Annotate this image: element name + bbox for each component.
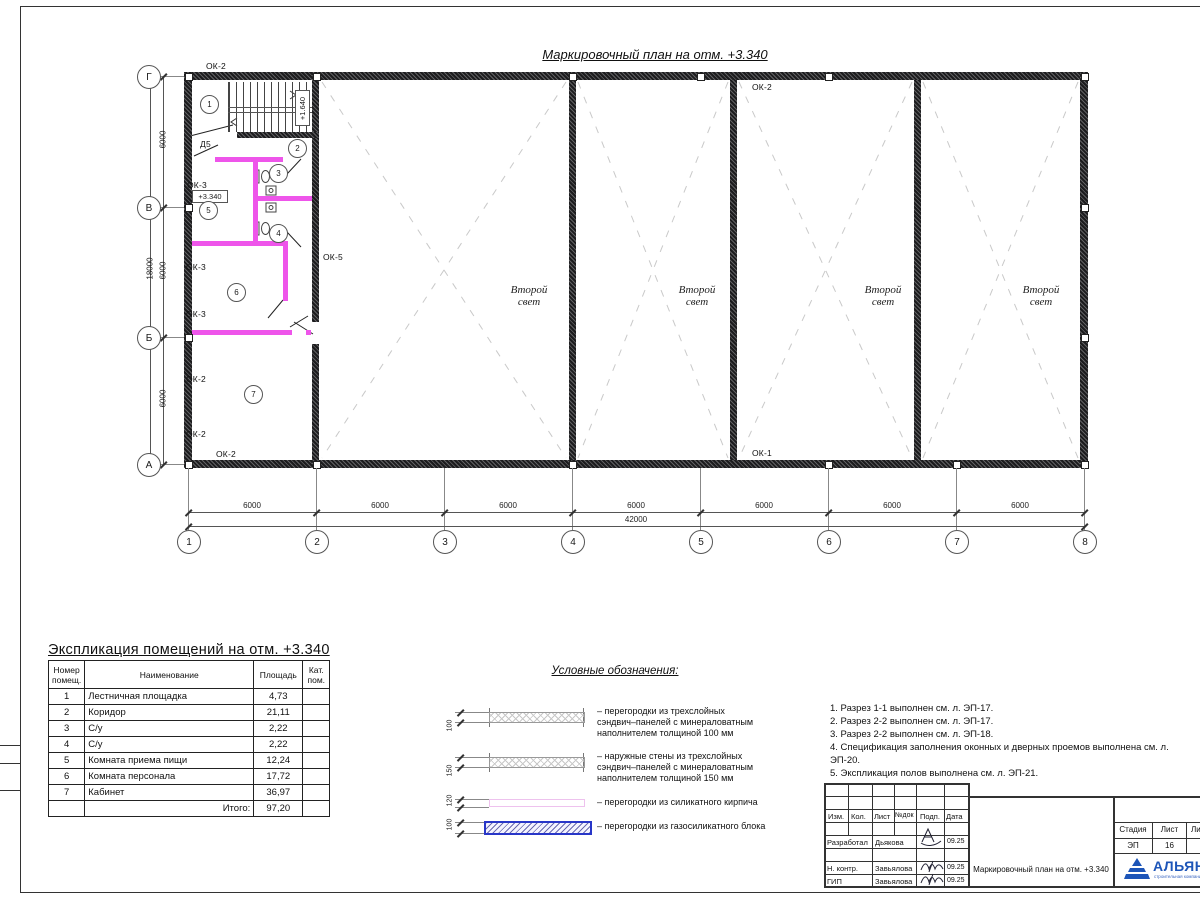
grid-axis-label: 3 (442, 537, 448, 548)
cell-area: 21,11 (254, 705, 303, 721)
legend-thickness: 150 (447, 756, 454, 786)
table-row: 7Кабинет36,97 (49, 785, 330, 801)
cell-name: Лестничная площадка (85, 689, 254, 705)
second-light-line1: Второй (666, 284, 728, 296)
stamp-line (824, 809, 968, 810)
legend-line: – наружные стены из трехслойных (597, 751, 753, 762)
header-room-number: Номерпомещ. (49, 661, 85, 689)
room-number: 6 (227, 283, 246, 302)
second-light-label: Второйсвет (852, 284, 914, 308)
stamp-sheet-value: 16 (1153, 841, 1186, 850)
table-row: 5Комната приема пищи12,24 (49, 753, 330, 769)
drawing-sheet: Маркировочный план на отм. +3.340 (0, 0, 1200, 900)
cell-area: 2,22 (254, 721, 303, 737)
wall-hall-partition-1 (569, 80, 576, 460)
cell-name: Кабинет (85, 785, 254, 801)
grid-axis-v: В (137, 196, 161, 220)
column-marker (825, 73, 833, 81)
stamp-sheet-header: Лист (1153, 825, 1186, 834)
wall-stairwell (237, 132, 319, 138)
partition-room6-right (283, 241, 288, 301)
stamp-header-podp: Подп. (920, 812, 940, 821)
cell-area: 36,97 (254, 785, 303, 801)
company-name: АЛЬЯНС (1153, 858, 1200, 874)
grid-axis-label: 8 (1082, 537, 1088, 548)
stamp-line (824, 835, 968, 836)
column-marker (185, 334, 193, 342)
stamp-header-list: Лист (874, 812, 890, 821)
room-number-label: 5 (206, 206, 210, 215)
partition-corridor (215, 157, 283, 162)
grid-axis-6: 6 (817, 530, 841, 554)
note-line: 1. Разрез 1-1 выполнен см. л. ЭП-17. (830, 702, 1200, 715)
table-row: 2Коридор21,11 (49, 705, 330, 721)
window-mark: ОК-2 (186, 429, 206, 439)
grid-axis-3: 3 (433, 530, 457, 554)
stair-level-mark: +1.640 (295, 90, 310, 126)
legend-symbol-silicate-brick (489, 799, 585, 807)
dimension-line (188, 526, 1084, 527)
room-number: 5 (199, 201, 218, 220)
header-line: помещ. (52, 675, 81, 685)
column-marker (953, 461, 961, 469)
sheet-notes: 1. Разрез 1-1 выполнен см. л. ЭП-17. 2. … (830, 702, 1200, 780)
grid-axis-label: 2 (314, 537, 320, 548)
stamp-name: Завьялова (875, 864, 912, 873)
column-marker (1081, 461, 1089, 469)
legend-line: сэндвич–панелей с минераловатным (597, 762, 753, 773)
cell-num: 6 (49, 769, 85, 785)
wall-grid2-lower (312, 344, 319, 468)
second-light-line2: свет (1010, 296, 1072, 308)
dim-bay: 6000 (159, 369, 168, 429)
legend-line: наполнителем толщиной 150 мм (597, 773, 753, 784)
cell-cat (303, 753, 330, 769)
extension-line (444, 468, 445, 530)
legend-symbol-sandwich-100 (489, 712, 585, 723)
stair-level-value: +1.640 (298, 96, 307, 119)
dim-bay: 6000 (862, 501, 922, 510)
room-number: 1 (200, 95, 219, 114)
extension-line (700, 468, 701, 530)
grid-axis-label: А (146, 460, 153, 471)
stamp-date: 09.25 (947, 838, 965, 845)
legend-thickness: 100 (447, 711, 454, 741)
grid-axis-label: 6 (826, 537, 832, 548)
legend-line: сэндвич–панелей с минераловатным (597, 717, 753, 728)
wall-hall-partition-3 (914, 80, 921, 460)
stamp-name: Завьялова (875, 877, 912, 886)
plan-level-value: +3.340 (198, 192, 221, 201)
stamp-document-title: Маркировочный план на отм. +3.340 (970, 865, 1112, 874)
note-line: 5. Экспликация полов выполнена см. л. ЭП… (830, 767, 1200, 780)
stamp-border (824, 886, 1200, 888)
second-light-label: Второйсвет (1010, 284, 1072, 308)
grid-axis-b: Б (137, 326, 161, 350)
table-total-row: Итого:97,20 (49, 801, 330, 817)
stamp-header-izm: Изм. (828, 812, 844, 821)
room-number: 3 (269, 164, 288, 183)
grid-axis-label: 7 (954, 537, 960, 548)
grid-axis-5: 5 (689, 530, 713, 554)
window-mark: ОК-1 (752, 448, 772, 458)
dim-total-width: 42000 (606, 515, 666, 524)
window-mark: ОК-2 (206, 61, 226, 71)
cell-total-label: Итого: (85, 801, 254, 817)
table-row: 1Лестничная площадка4,73 (49, 689, 330, 705)
room-number-label: 6 (234, 288, 238, 297)
extension-line (828, 468, 829, 530)
cell-area: 4,73 (254, 689, 303, 705)
legend-thickness: 100 (447, 810, 454, 840)
stamp-line (824, 848, 968, 849)
dim-bay: 6000 (606, 501, 666, 510)
signature (919, 826, 943, 846)
header-category: Кат.пом. (303, 661, 330, 689)
wall-grid2-upper (312, 72, 319, 322)
stamp-header-data: Дата (946, 812, 963, 821)
grid-axis-4: 4 (561, 530, 585, 554)
room-number: 7 (244, 385, 263, 404)
cell-cat (303, 721, 330, 737)
cell-empty (49, 801, 85, 817)
window-mark: ОК-5 (323, 252, 343, 262)
grid-axis-8: 8 (1073, 530, 1097, 554)
stamp-border (968, 796, 1200, 798)
door-mark: Д5 (200, 139, 211, 149)
extension-line (956, 468, 957, 530)
cell-cat (303, 705, 330, 721)
cell-num: 1 (49, 689, 85, 705)
table-row: 4С/у2,22 (49, 737, 330, 753)
header-name: Наименование (85, 661, 254, 689)
dim-bay: 6000 (159, 110, 168, 170)
header-line: пом. (306, 675, 326, 685)
stamp-role: Разработал (827, 838, 868, 847)
stamp-border (824, 783, 968, 785)
cell-num: 5 (49, 753, 85, 769)
cell-num: 3 (49, 721, 85, 737)
grid-axis-label: В (146, 203, 153, 214)
legend-item-text: – перегородки из газосиликатного блока (597, 821, 765, 832)
room-number-label: 2 (295, 144, 299, 153)
window-mark: ОК-2 (186, 374, 206, 384)
dim-bay: 6000 (990, 501, 1050, 510)
signature (919, 873, 945, 886)
column-marker (1081, 334, 1089, 342)
column-marker (185, 204, 193, 212)
partition-axis-b (192, 330, 290, 335)
cell-area: 12,24 (254, 753, 303, 769)
second-light-line2: свет (852, 296, 914, 308)
room-number: 2 (288, 139, 307, 158)
column-marker (313, 461, 321, 469)
note-line: 2. Разрез 2-2 выполнен см. л. ЭП-17. (830, 715, 1200, 728)
window-mark: ОК-3 (187, 180, 207, 190)
stamp-date: 09.25 (947, 877, 965, 884)
extension-line (572, 468, 573, 530)
extension-line (316, 468, 317, 530)
grid-axis-2: 2 (305, 530, 329, 554)
second-light-line1: Второй (1010, 284, 1072, 296)
dimension-line (188, 512, 1084, 513)
stamp-date: 09.25 (947, 864, 965, 871)
second-light-line2: свет (498, 296, 560, 308)
second-light-label: Второйсвет (498, 284, 560, 308)
extension-line (1084, 468, 1085, 530)
grid-axis-g: Г (137, 65, 161, 89)
dim-total-height: 18000 (146, 239, 155, 299)
second-light-line1: Второй (498, 284, 560, 296)
wall-exterior-right (1080, 72, 1088, 468)
legend-line: – перегородки из газосиликатного блока (597, 821, 765, 832)
grid-axis-label: 4 (570, 537, 576, 548)
company-tagline: строительная компания (1154, 874, 1200, 879)
second-light-label: Второйсвет (666, 284, 728, 308)
grid-axis-1: 1 (177, 530, 201, 554)
column-marker (825, 461, 833, 469)
header-line: Номер (52, 665, 81, 675)
window-mark: ОК-3 (186, 262, 206, 272)
room-number-label: 7 (251, 390, 255, 399)
window-mark: ОК-2 (752, 82, 772, 92)
header-area: Площадь (254, 661, 303, 689)
second-light-line1: Второй (852, 284, 914, 296)
stamp-stage-value: ЭП (1114, 841, 1152, 850)
room-number: 4 (269, 224, 288, 243)
second-light-line2: свет (666, 296, 728, 308)
grid-axis-7: 7 (945, 530, 969, 554)
room-number-label: 4 (276, 229, 280, 238)
room-number-label: 3 (276, 169, 280, 178)
wall-hall-partition-2 (730, 80, 737, 460)
column-marker (185, 73, 193, 81)
stamp-header-ndok: №док (895, 812, 914, 819)
room-number-label: 1 (207, 100, 211, 109)
table-row: 3С/у2,22 (49, 721, 330, 737)
partition-wc-divider (258, 196, 312, 201)
legend-item-text: – перегородки из силикатного кирпича (597, 797, 758, 808)
cell-num: 4 (49, 737, 85, 753)
table-row: 6Комната персонала17,72 (49, 769, 330, 785)
legend-item-text: – перегородки из трехслойных сэндвич–пан… (597, 706, 753, 739)
window-mark: ОК-2 (216, 449, 236, 459)
note-line: 4. Спецификация заполнения оконных и две… (830, 741, 1200, 767)
legend-title: Условные обозначения: (540, 665, 690, 677)
stamp-sheets-value: 2 (1187, 841, 1200, 850)
room-schedule-table: Номерпомещ. Наименование Площадь Кат.пом… (48, 660, 330, 817)
window-mark: ОК-3 (186, 309, 206, 319)
stamp-role: ГИП (827, 877, 842, 886)
company-logo-icon (1124, 857, 1150, 881)
stamp-sheets-header: Листов (1187, 825, 1200, 834)
cell-name: С/у (85, 721, 254, 737)
column-marker (1081, 73, 1089, 81)
legend-line: – перегородки из силикатного кирпича (597, 797, 758, 808)
legend-symbol-sandwich-150 (489, 757, 585, 768)
cell-name: С/у (85, 737, 254, 753)
column-marker (313, 73, 321, 81)
dim-bay: 6000 (478, 501, 538, 510)
header-line: Кат. (306, 665, 326, 675)
dim-bay: 6000 (734, 501, 794, 510)
grid-axis-label: Б (146, 333, 153, 344)
grid-axis-a: А (137, 453, 161, 477)
cell-name: Комната приема пищи (85, 753, 254, 769)
legend-symbol-gas-silicate-block (484, 821, 592, 835)
signature (919, 860, 945, 873)
schedule-title: Экспликация помещений на отм. +3.340 (48, 642, 330, 658)
stamp-line (824, 861, 968, 862)
note-line: 3. Разрез 2-2 выполнен см. л. ЭП-18. (830, 728, 1200, 741)
partition-door-stub (306, 330, 311, 335)
column-marker (697, 73, 705, 81)
cell-area: 17,72 (254, 769, 303, 785)
stamp-line (824, 796, 968, 797)
extension-line (188, 468, 189, 530)
cell-cat (303, 737, 330, 753)
stamp-role: Н. контр. (827, 864, 858, 873)
legend-item-text: – наружные стены из трехслойных сэндвич–… (597, 751, 753, 784)
table-header-row: Номерпомещ. Наименование Площадь Кат.пом… (49, 661, 330, 689)
cell-empty (303, 801, 330, 817)
column-marker (1081, 204, 1089, 212)
stamp-name: Дьякова (875, 838, 904, 847)
cell-total-value: 97,20 (254, 801, 303, 817)
column-marker (569, 73, 577, 81)
stamp-header-kol: Кол. (851, 812, 866, 821)
cell-name: Коридор (85, 705, 254, 721)
cell-cat (303, 785, 330, 801)
cell-area: 2,22 (254, 737, 303, 753)
stamp-line (824, 874, 968, 875)
cell-num: 7 (49, 785, 85, 801)
stamp-stage-header: Стадия (1114, 825, 1152, 834)
cell-num: 2 (49, 705, 85, 721)
dim-bay: 6000 (159, 241, 168, 301)
grid-axis-label: 5 (698, 537, 704, 548)
bay-cross-lines (322, 82, 1078, 458)
dim-bay: 6000 (222, 501, 282, 510)
grid-axis-label: 1 (186, 537, 192, 548)
dim-bay: 6000 (350, 501, 410, 510)
cell-name: Комната персонала (85, 769, 254, 785)
legend-line: – перегородки из трехслойных (597, 706, 753, 717)
column-marker (185, 461, 193, 469)
cell-cat (303, 689, 330, 705)
stamp-line (1113, 853, 1200, 854)
stamp-line (824, 822, 968, 823)
legend-line: наполнителем толщиной 100 мм (597, 728, 753, 739)
cell-cat (303, 769, 330, 785)
partition-door-stub (288, 330, 292, 335)
column-marker (569, 461, 577, 469)
grid-axis-label: Г (146, 72, 151, 83)
